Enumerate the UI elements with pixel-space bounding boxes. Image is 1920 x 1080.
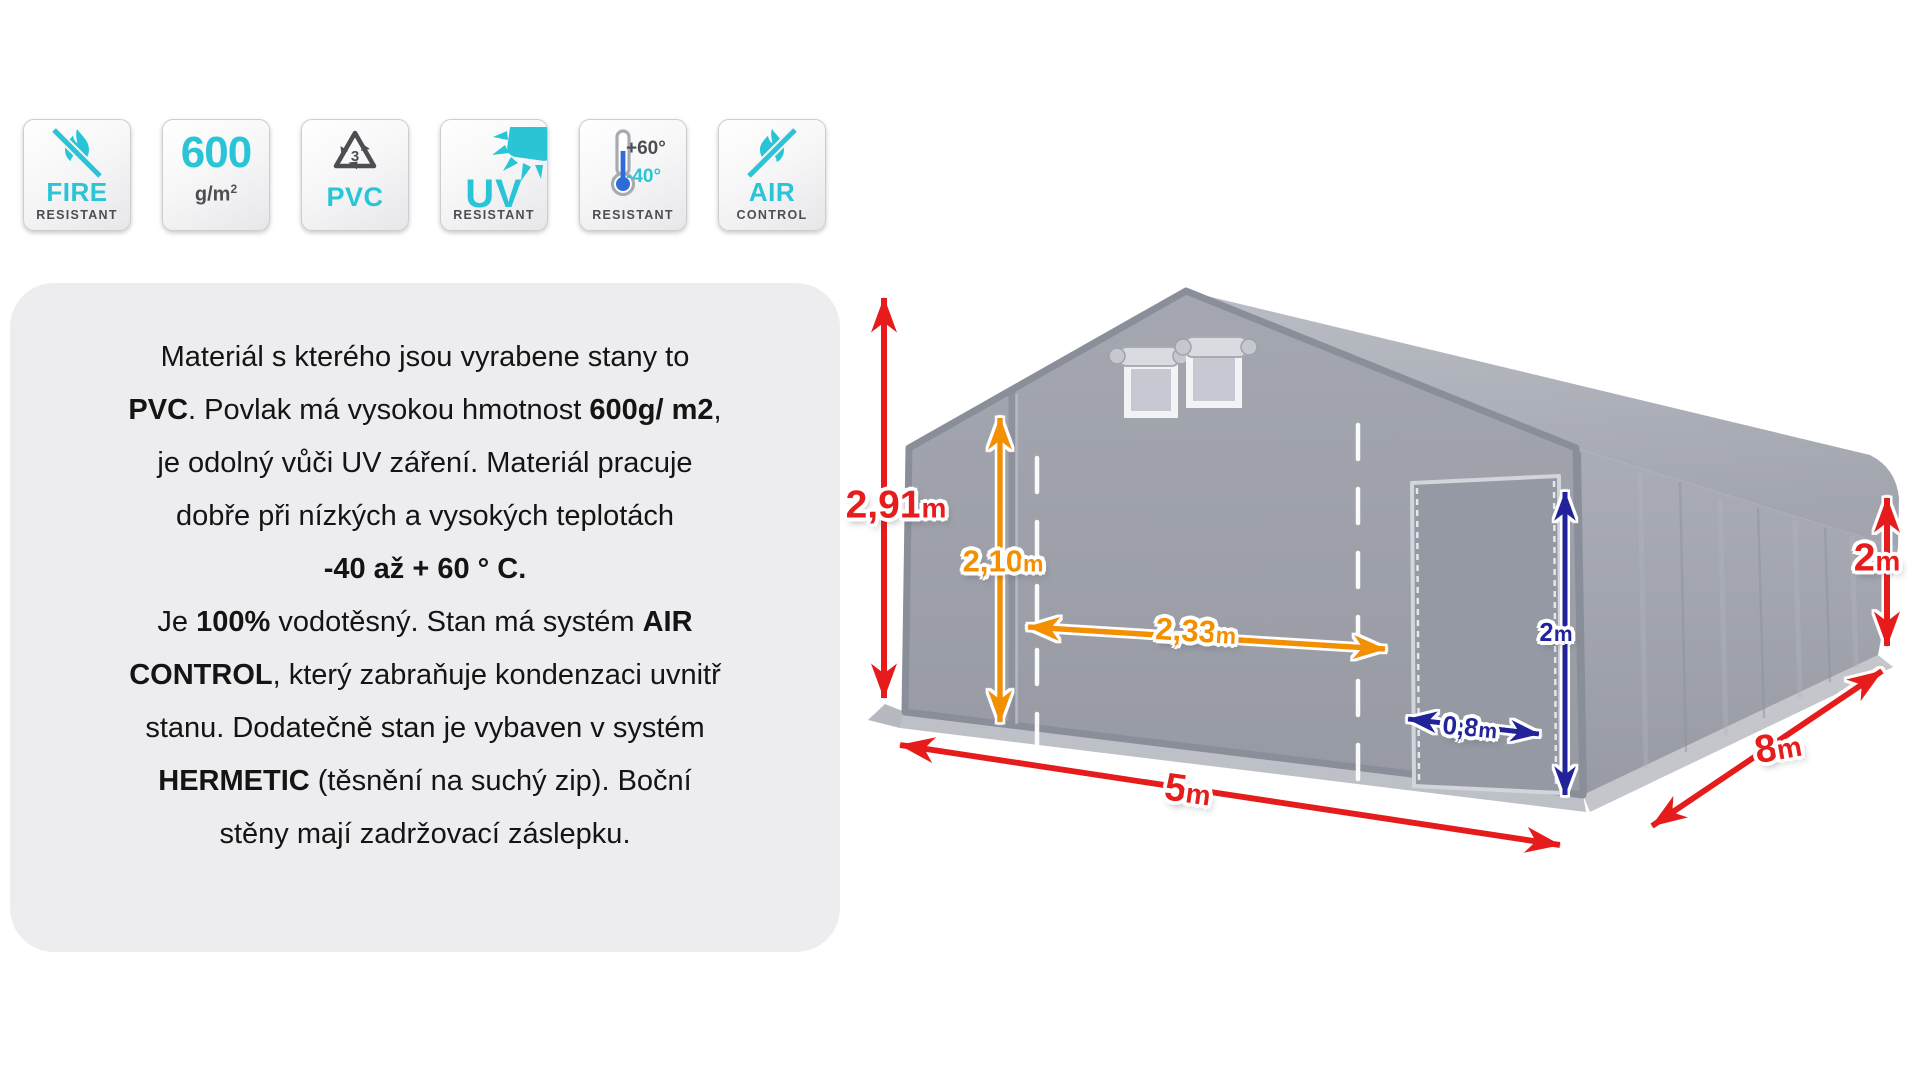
badge-subtitle: RESISTANT (24, 208, 130, 222)
description-text: CONTROL (129, 659, 272, 691)
page: { "colors":{ "teal":"#29c5d6", "icon_gra… (0, 0, 1920, 1080)
description-text: , (714, 394, 722, 426)
dim-door-width: 0,8m (1442, 712, 1499, 743)
badge-air-control: AIR CONTROL (718, 119, 826, 231)
dim-unit: m (1875, 546, 1900, 577)
description-text: (těsnění na suchý zip). Boční (310, 765, 692, 797)
badge-title: PVC (302, 182, 408, 213)
dim-value: 0,8 (1441, 710, 1480, 743)
description-line: Je 100% vodotěsný. Stan má systém AIR (50, 596, 800, 649)
description-text: -40 až + 60 ° C. (324, 553, 527, 585)
pvc-code: 3 (351, 148, 359, 165)
dim-unit: m (1215, 622, 1237, 649)
badge-title: AIR (719, 177, 825, 208)
badge-fire-resistant: FIRE RESISTANT (23, 119, 131, 231)
dim-side-wall-height: 2m (1854, 539, 1901, 578)
description-text: HERMETIC (158, 765, 309, 797)
description-text: je odolný vůči UV záření. Materiál pracu… (157, 447, 692, 479)
description-line: je odolný vůči UV záření. Materiál pracu… (50, 437, 800, 490)
weight-unit-text: g/m (195, 184, 231, 206)
description-line: stěny mají zadržovací záslepku. (50, 808, 800, 861)
badge-weight: 600 g/m2 (162, 119, 270, 231)
temperature-high: +60° (626, 138, 684, 160)
description-text: , který zabraňuje kondenzaci uvnitř (273, 659, 721, 691)
description-line: CONTROL, který zabraňuje kondenzaci uvni… (50, 649, 800, 702)
dim-value: 2,10 (963, 544, 1023, 579)
dim-total-height: 2,91m (846, 486, 947, 525)
description-text: Materiál s kterého jsou vyrabene stany t… (161, 341, 690, 373)
weight-unit: g/m2 (163, 182, 269, 207)
description-text: 600g/ m2 (589, 394, 713, 426)
description-text: dobře při nízkých a vysokých teplotách (176, 500, 674, 532)
dim-unit: m (1554, 623, 1573, 646)
dim-value: 2,91 (846, 484, 922, 527)
description-text: 100% (196, 606, 270, 638)
dim-front-wall-height: 2,10m (963, 546, 1044, 577)
description-line: dobře při nízkých a vysokých teplotách (50, 490, 800, 543)
flame-slash-icon (46, 127, 108, 179)
badge-subtitle: RESISTANT (441, 208, 547, 222)
description-text: vodotěsný. Stan má systém (270, 606, 642, 638)
badge-pvc-material: 3 PVC (301, 119, 409, 231)
flame-slash-icon (741, 127, 803, 179)
tent-diagram: 2,91m 2,10m 2,33m 2m 0,8m 2m 5m 8m (840, 250, 1920, 890)
description-line: Materiál s kterého jsou vyrabene stany t… (50, 331, 800, 384)
dim-value: 2 (1854, 537, 1876, 580)
dim-door-height: 2m (1539, 619, 1572, 645)
dim-value: 2,33 (1155, 611, 1217, 650)
description-text: stanu. Dodatečně stan je vybaven v systé… (145, 712, 704, 744)
description-text: stěny mají zadržovací záslepku. (219, 818, 630, 850)
description-text: PVC (128, 394, 188, 426)
dim-unit: m (922, 493, 947, 524)
description-text: . Povlak má vysokou hmotnost (188, 394, 589, 426)
badge-subtitle: CONTROL (719, 208, 825, 222)
dim-unit: m (1477, 719, 1498, 744)
description-line: -40 až + 60 ° C. (50, 543, 800, 596)
dim-unit: m (1184, 777, 1213, 811)
weight-value: 600 (163, 128, 269, 178)
weight-unit-sup: 2 (230, 182, 237, 196)
temperature-low: -40° (626, 166, 684, 188)
dim-unit: m (1774, 731, 1804, 766)
dim-value: 2 (1539, 617, 1553, 647)
dim-front-width: 5m (1162, 767, 1214, 812)
recycling-icon: 3 (329, 127, 381, 175)
description-text: AIR (643, 606, 693, 638)
description-card: Materiál s kterého jsou vyrabene stany t… (10, 283, 840, 952)
description-line: HERMETIC (těsnění na suchý zip). Boční (50, 755, 800, 808)
description-line: stanu. Dodatečně stan je vybaven v systé… (50, 702, 800, 755)
badge-temperature-resistant: +60° -40° RESISTANT (579, 119, 687, 231)
dim-unit: m (1023, 551, 1043, 577)
badge-title: FIRE (24, 177, 130, 208)
badge-uv-resistant: UV RESISTANT (440, 119, 548, 231)
badge-subtitle: RESISTANT (580, 208, 686, 222)
dim-entrance-width: 2,33m (1155, 613, 1238, 649)
dim-length: 8m (1752, 724, 1805, 771)
product-description: Materiál s kterého jsou vyrabene stany t… (50, 331, 800, 861)
description-line: PVC. Povlak má vysokou hmotnost 600g/ m2… (50, 384, 800, 437)
description-text: Je (157, 606, 196, 638)
